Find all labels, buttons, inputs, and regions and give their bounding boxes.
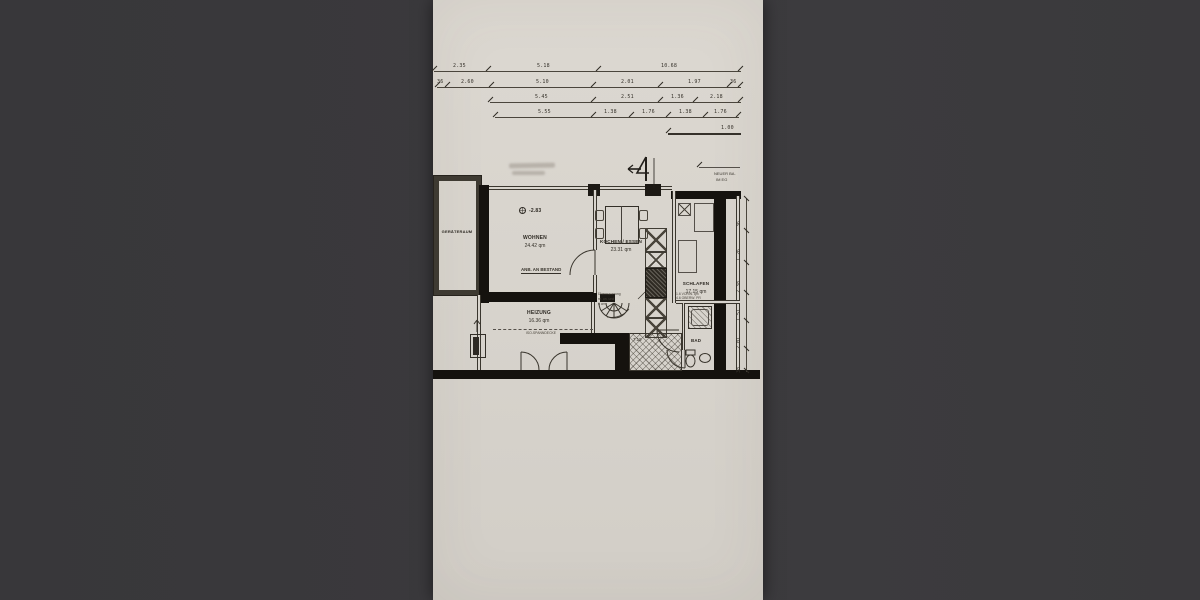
level-value: -2.83	[529, 208, 541, 216]
dim-line	[490, 102, 741, 103]
wall	[671, 191, 741, 199]
chimney-flue	[473, 337, 479, 355]
bathtub-inner	[691, 309, 709, 326]
wall	[479, 185, 489, 303]
balcony-note: NEUER BA.	[714, 171, 736, 176]
dim-label: 2.35	[453, 64, 466, 69]
wall	[672, 191, 676, 303]
ceiling-note: ISO-SPANNDECKE	[511, 331, 571, 335]
wall	[676, 300, 740, 304]
schlafen-bed	[678, 240, 697, 273]
dim-label: 1.38	[604, 110, 617, 115]
schlafen-wardrobe	[694, 203, 714, 232]
dim-label: 1.76	[642, 110, 655, 115]
dim-label: 1.51	[737, 309, 742, 321]
dim-label: 2.51	[621, 95, 634, 100]
chair	[595, 210, 604, 221]
scale-bar	[668, 133, 741, 135]
chair	[639, 228, 648, 239]
existing-building-wall	[433, 370, 760, 379]
chair	[595, 228, 604, 239]
chimney-box	[645, 268, 667, 298]
dim-label: 1.97	[688, 80, 701, 85]
dim-label: 2.18	[710, 95, 723, 100]
wall	[682, 303, 685, 350]
dim-label: 1.26	[737, 249, 742, 261]
dim-line	[437, 87, 741, 88]
dim-label: 36	[730, 80, 736, 85]
dim-line	[434, 71, 741, 72]
balcony-note: IM EG	[716, 177, 727, 182]
dim-label: 5.10	[536, 80, 549, 85]
balcony-ref-line	[699, 167, 740, 168]
wc-fixture	[686, 350, 695, 367]
room-geraeteraum-walls	[434, 176, 481, 295]
room-area-heizung: 16.36 qm	[519, 318, 559, 326]
dim-label: 1.36	[671, 95, 684, 100]
window-wall	[489, 186, 595, 190]
scale-label: 1.00	[721, 126, 734, 131]
bad-note: 4.6 OBERW. PR	[676, 296, 701, 300]
level-marker: -2.83	[519, 207, 559, 217]
wall	[714, 196, 726, 375]
dim-label: 38	[737, 367, 742, 373]
room-label-heizung: HEIZUNG	[519, 310, 559, 318]
dim-line	[746, 198, 747, 372]
shaft-box	[645, 252, 667, 268]
wall	[615, 333, 629, 371]
dim-label: 5.18	[537, 64, 550, 69]
dim-label: 36	[737, 221, 742, 227]
room-area-kochen: 23.31 qm	[596, 247, 646, 255]
room-label-bad: BAD	[691, 338, 701, 345]
level-marker-icon	[519, 207, 526, 214]
uebermauerung-note: re. un. und	[598, 297, 614, 301]
wall	[477, 295, 481, 371]
window-wall	[600, 186, 672, 190]
dim-label: 5.55	[538, 110, 551, 115]
room-area-wohnen: 24.42 qm	[515, 243, 555, 251]
dim-label: 36	[437, 80, 443, 85]
sink-fixture	[700, 354, 711, 363]
shaft-box	[645, 228, 667, 252]
dim-label: 2.01	[737, 337, 742, 349]
room-label-geraeteraum: GERÄTERAUM	[437, 229, 477, 235]
wall	[593, 275, 597, 293]
door-arc	[570, 250, 595, 275]
room-label-kochen: KOCHEN / ESSEN	[596, 239, 646, 246]
door-arc	[521, 352, 567, 370]
uebermauerung-note: 6 cm	[598, 302, 605, 306]
wall	[487, 292, 597, 302]
dim-label: 10.68	[661, 64, 677, 69]
anbindung-note: ANB. AN BESTAND	[521, 267, 561, 274]
pencil-note	[509, 163, 555, 169]
pencil-note	[512, 171, 545, 175]
floor-plan-sheet: 2.35 5.18 10.68 36 2.60 5.10 2.01 1.97 3…	[433, 0, 763, 600]
room-area-flur: 7.19	[633, 337, 642, 344]
room-label-wohnen: WOHNEN	[515, 235, 555, 243]
chair	[639, 210, 648, 221]
wall-pier	[645, 184, 661, 196]
dim-label: 2.38	[737, 281, 742, 293]
schlafen-cabinet	[678, 203, 691, 216]
room-label-schlafen: SCHLAFEN	[678, 281, 714, 288]
dim-label: 1.76	[714, 110, 727, 115]
dim-label: 2.60	[461, 80, 474, 85]
uebermauerung-note: Übermauerung	[598, 292, 621, 296]
shaft-box	[645, 298, 667, 318]
dim-label: 5.45	[535, 95, 548, 100]
ceiling-dash-line	[493, 329, 593, 330]
dim-label: 2.01	[621, 80, 634, 85]
dim-label: 1.38	[679, 110, 692, 115]
